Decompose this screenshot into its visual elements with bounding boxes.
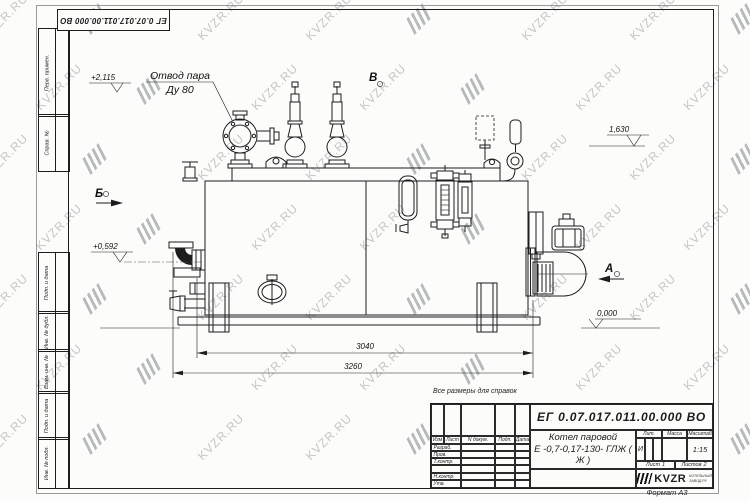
tb-blank (461, 465, 495, 473)
stamp-doc-number: ЕГ 0.07.017.011.00.000 ВО (60, 16, 167, 25)
tb-header-izm: Изм (431, 436, 444, 444)
elevation-1630: 1,630 (589, 125, 649, 146)
tb-blank (515, 444, 530, 451)
kvzr-logo-text: KVZR (654, 473, 686, 485)
sheets-value: 2 (703, 462, 706, 468)
sheet-value: 1 (662, 462, 665, 468)
tb-blank (461, 458, 495, 465)
pressure-gauge (502, 120, 523, 181)
steam-outlet-callout: Отвод пара Ду 80 (146, 70, 232, 120)
svg-text:+2,115: +2,115 (91, 73, 116, 82)
tb-lit-value: И (636, 438, 645, 461)
tb-blank (461, 480, 495, 488)
svg-text:0,000: 0,000 (597, 309, 618, 318)
left-elbow-pipe (169, 242, 205, 277)
sensor-dashed-box (476, 116, 494, 160)
tb-role-utv: Утв. (431, 480, 461, 488)
svg-text:Ду 80: Ду 80 (165, 84, 194, 96)
tb-header-ndoc: N докум. (461, 436, 495, 444)
margin-label: Взам. инв. № (44, 354, 50, 388)
tb-blank (431, 465, 461, 473)
svg-text:3260: 3260 (344, 362, 362, 371)
safety-valve-1 (283, 82, 307, 168)
tb-blank (431, 404, 444, 436)
tb-scale-header: Масштаб (687, 430, 713, 438)
drain-fittings (169, 283, 205, 311)
boiler-shell (205, 168, 528, 315)
steam-outlet-valve (223, 111, 279, 168)
format-label: Формат А3 (622, 488, 712, 497)
tb-sheets: Листов 2 (675, 461, 713, 469)
svg-text:Отвод пара: Отвод пара (150, 70, 210, 82)
tb-blank (461, 451, 495, 458)
product-name-line2: Е -0,7-0,17-130- ГЛЖ ( Ж ) (531, 444, 635, 468)
safety-valve-2 (325, 82, 349, 168)
svg-text:В: В (369, 72, 377, 84)
margin-label: Подп. и дата (44, 266, 50, 300)
svg-text:1,630: 1,630 (609, 125, 630, 134)
tb-company: KVZR КОТЕЛЬНЫЙ ЗАВОД.РУ (636, 469, 713, 488)
drawing-sheet: KVZR.RUKVZR.RUKVZR.RUKVZR.RUKVZR.RUKVZR.… (0, 0, 750, 500)
tb-header-podp: Подп. (495, 436, 515, 444)
reference-note: Все размеры для справок (433, 388, 517, 395)
margin-label: Инв. № подл. (44, 446, 50, 480)
margin-label: Подп. и дата (44, 398, 50, 432)
title-block: Изм Лист N докум. Подп. Дата Разраб. Про… (430, 403, 714, 489)
water-gauge-1 (431, 165, 459, 238)
tb-role-prov: Пров. (431, 451, 461, 458)
tb-blank (461, 444, 495, 451)
margin-box-vzam-inv: Взам. инв. № (38, 349, 70, 394)
sheet-label: Лист (646, 462, 660, 468)
tb-blank (495, 458, 515, 465)
view-b-marker: Б (95, 188, 123, 206)
tb-lit-header: Лит. (636, 430, 662, 438)
tb-blank (461, 404, 495, 436)
view-v-marker: В (369, 72, 383, 87)
svg-text:Б: Б (95, 188, 103, 200)
margin-box-inv-dubl: Инв. № дубл. (38, 311, 70, 352)
tb-mass-value (662, 438, 687, 461)
svg-text:+0,592: +0,592 (93, 242, 118, 251)
product-name-line1: Котел паровой (549, 432, 617, 444)
tb-blank (530, 469, 636, 488)
burner (526, 214, 588, 296)
margin-label: Справ. № (44, 131, 50, 156)
tb-doc-number: ЕГ 0.07.017.011.00.000 ВО (530, 404, 713, 430)
elevation-2115: +2,115 (89, 73, 131, 92)
margin-box-podp-data-2: Подп. и дата (38, 391, 70, 440)
view-a-marker: А (598, 263, 624, 282)
small-top-valve (182, 162, 198, 181)
svg-text:3040: 3040 (356, 342, 374, 351)
water-gauge-2 (458, 170, 472, 232)
tb-blank (444, 404, 461, 436)
tb-blank (515, 451, 530, 458)
top-left-stamp: ЕГ 0.07.017.011.00.000 ВО (57, 9, 170, 31)
level-probe (396, 176, 417, 233)
tb-blank (495, 451, 515, 458)
margin-box-sprav: Справ. № (38, 114, 70, 172)
tb-blank (645, 438, 653, 461)
skid-frame (178, 283, 540, 332)
tb-blank (495, 465, 515, 473)
tb-header-list: Лист (444, 436, 461, 444)
tb-role-tkontr: Т.контр. (431, 458, 461, 465)
kvzr-logo-icon (636, 473, 653, 484)
tb-blank (495, 404, 515, 436)
tb-role-nkontr: Н.контр. (431, 473, 461, 480)
tb-blank (461, 473, 495, 480)
tb-scale-value: 1:15 (687, 438, 713, 461)
kvzr-logo-subtext: КОТЕЛЬНЫЙ ЗАВОД.РУ (689, 474, 712, 483)
tb-blank (495, 480, 515, 488)
tb-product-name: Котел паровой Е -0,7-0,17-130- ГЛЖ ( Ж ) (530, 430, 636, 469)
lifting-lug-right (484, 159, 500, 168)
tb-blank (495, 444, 515, 451)
tb-blank (515, 473, 530, 480)
tb-blank (515, 404, 530, 436)
margin-box-podp-data-1: Подп. и дата (38, 252, 70, 314)
tb-blank (515, 465, 530, 473)
tb-header-data: Дата (515, 436, 530, 444)
tb-blank (653, 438, 662, 461)
margin-label: Перв. примен. (44, 54, 50, 91)
tb-role-razrab: Разраб. (431, 444, 461, 451)
margin-label: Инв. № дубл. (44, 315, 50, 349)
tb-sheet: Лист 1 (636, 461, 675, 469)
tb-blank (495, 473, 515, 480)
tb-mass-header: Масса (662, 430, 687, 438)
sheets-label: Листов (681, 462, 701, 468)
svg-text:А: А (604, 263, 613, 275)
manhole (258, 275, 286, 305)
margin-box-perv-primen: Перв. примен. (38, 28, 70, 117)
tb-blank (515, 458, 530, 465)
margin-box-inv-podl: Инв. № подл. (38, 437, 70, 489)
tb-blank (515, 480, 530, 488)
dimension-3040: 3040 (197, 278, 533, 358)
